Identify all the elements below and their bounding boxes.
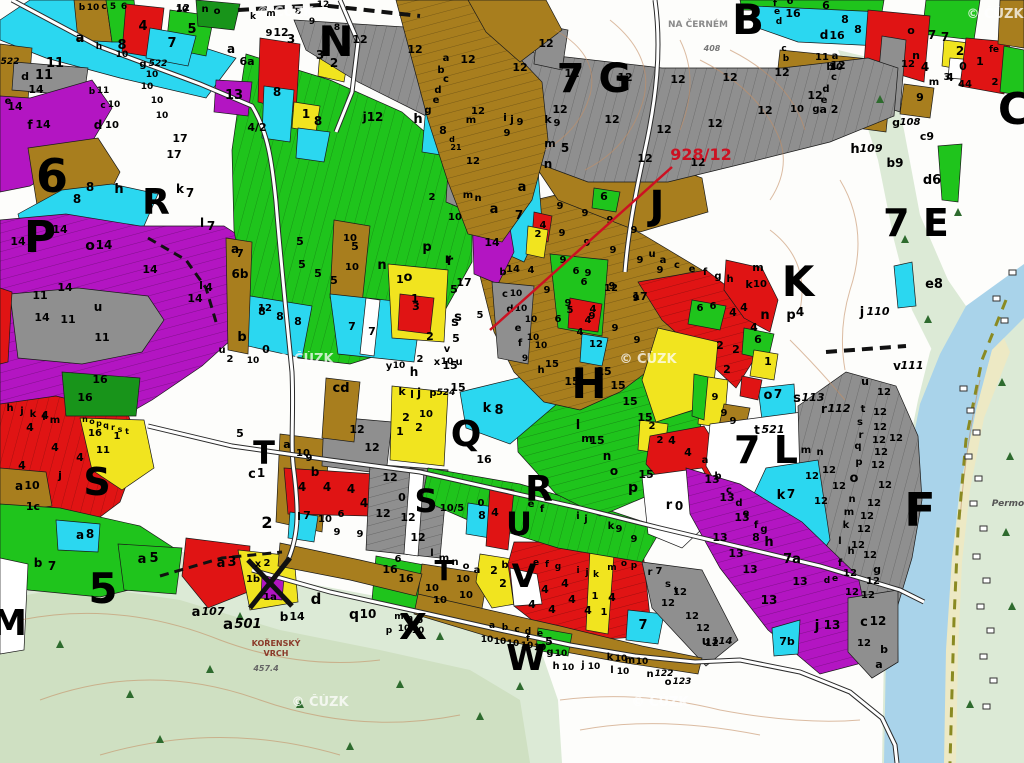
parcel[interactable] (296, 128, 330, 162)
map-label: 110 (867, 305, 890, 318)
map-label: M (0, 603, 27, 644)
map-label: g (546, 647, 553, 658)
map-label: R (142, 182, 170, 223)
map-label: u (94, 300, 103, 314)
map-label: 7a (783, 552, 801, 567)
map-label: 12 (757, 104, 772, 117)
map-label: a (138, 552, 147, 567)
map-label: p (855, 457, 862, 468)
map-label: 10 (141, 82, 154, 92)
map-label: 4 (561, 577, 569, 590)
map-label: 111 (901, 359, 924, 372)
map-label: o (665, 677, 672, 688)
map-label: c (860, 615, 868, 630)
map-label: 10 (425, 583, 439, 594)
map-label: h (552, 661, 559, 672)
building (975, 476, 982, 481)
map-label: q (349, 607, 359, 623)
map-label: h (413, 112, 422, 127)
map-label: b9 (887, 156, 904, 170)
map-label: c (831, 72, 837, 83)
building (977, 604, 984, 609)
map-label: d (735, 498, 742, 509)
map-label: l (838, 536, 841, 547)
map-label: h (6, 403, 13, 414)
map-label: 9 (712, 392, 719, 403)
map-label: 11 (96, 445, 110, 456)
map-label: 7 (638, 618, 647, 633)
map-label: 9 (631, 534, 638, 545)
map-label: 12 (604, 113, 619, 126)
map-label: 15 (545, 359, 559, 370)
tree-icon (954, 208, 962, 216)
map-label: 12 (707, 117, 722, 130)
map-label: 10 (507, 639, 520, 649)
contour-line (840, 180, 858, 370)
map-label: 10 (535, 341, 548, 351)
map-label: 12 (873, 407, 887, 418)
map-label: j (416, 386, 421, 400)
map-label: 8 (86, 527, 94, 541)
map-label: 12 (861, 590, 875, 601)
map-label: 6 (600, 190, 608, 203)
watermark: © ČÚZK (619, 351, 677, 367)
map-label: e (537, 629, 543, 639)
map-label: m (752, 261, 763, 274)
map-label: 7 (167, 36, 176, 51)
map-svg[interactable]: NBC7 G7 EJKHQRRPSSTTUVWX56MF7 LNA ČERNÉM… (0, 0, 1024, 763)
watermark: © ČÚZK (631, 694, 689, 710)
map-label: 7 (928, 28, 936, 42)
map-label: c (726, 485, 732, 496)
map-label: f (518, 338, 523, 349)
map-label: d (822, 84, 829, 95)
map-label: 0 (478, 498, 485, 509)
map-label: 12 (870, 614, 887, 628)
map-label: 14 (34, 311, 50, 324)
map-label: 10 (636, 657, 649, 667)
map-label: 7 (787, 487, 795, 501)
map-label: k (777, 488, 786, 503)
map-label: 4 (577, 327, 584, 338)
map-label: 11 (32, 289, 47, 302)
map-label: 4 (205, 281, 213, 294)
map-label: 12 (410, 531, 425, 544)
map-label: d (776, 17, 782, 27)
map-label: 12 (901, 59, 915, 70)
map-label: h (847, 546, 854, 557)
map-label: 10 (753, 279, 767, 290)
map-label: a (490, 202, 499, 217)
map-label: 14 (35, 118, 51, 131)
map-label: 16 (785, 7, 801, 20)
map-label: m (439, 553, 449, 564)
map-label: 9 (633, 293, 640, 304)
map-label: 9 (657, 265, 664, 276)
map-label: 9 (916, 91, 924, 104)
map-label: r (648, 567, 653, 578)
map-label: 16 (398, 572, 414, 585)
map-label: a 2 (820, 103, 839, 116)
map-label: 10 (790, 104, 804, 115)
map-label: 8 (73, 192, 81, 206)
watermark: © ČÚZK (276, 351, 334, 367)
map-label: p (786, 308, 795, 323)
map-label: 13 (712, 531, 727, 544)
map-label: 4 (590, 304, 597, 315)
parcel[interactable] (894, 262, 916, 308)
map-label: 7 (774, 387, 782, 401)
map-label: e (743, 508, 750, 519)
map-label: m (50, 415, 60, 426)
map-label: 1b (246, 574, 260, 585)
map-label: 4 (548, 603, 556, 616)
map-label: 12 (807, 89, 822, 102)
map-label: l (610, 665, 613, 676)
map-label: e (533, 558, 539, 568)
map-label: 7 E (883, 201, 949, 245)
map-label: 114 (712, 636, 733, 647)
map-label: 6 (338, 509, 345, 520)
map-label: 9 (612, 323, 619, 334)
map-label: 12 (832, 481, 846, 492)
map-label: n (816, 447, 823, 458)
boundary-dashed-line (826, 346, 906, 352)
map-label: 14 (10, 235, 26, 248)
map-label: 12 (661, 598, 675, 609)
map-label: 10 (562, 663, 575, 673)
map-label: fe (989, 45, 999, 55)
map-label: F (904, 483, 935, 537)
map-label: h (96, 42, 102, 52)
map-label: 2 (227, 354, 234, 365)
map-label: j (859, 305, 864, 320)
map-label: 4 (585, 315, 592, 326)
map-label: 2 (732, 343, 740, 356)
map-label: u (702, 634, 711, 648)
map-label: n (201, 4, 208, 15)
map-label: 2 (535, 229, 542, 240)
map-label: 4 (360, 496, 368, 510)
map-label: 12 (866, 576, 880, 587)
map-label: o (463, 561, 470, 572)
map-label: m (625, 655, 635, 666)
map-label: 10 (494, 637, 507, 647)
map-label: 15 (622, 395, 637, 408)
map-label: 12 (656, 123, 671, 136)
map-label: g (424, 105, 431, 116)
map-label: 6 (121, 2, 127, 12)
map-label: 8 (294, 315, 302, 328)
map-label: v (444, 344, 451, 355)
map-label: 1 (396, 425, 404, 438)
map-label: 3 (944, 72, 951, 83)
map-label: 6 (573, 266, 580, 277)
map-label: 12 (867, 498, 881, 509)
map-label: 9 (266, 28, 273, 39)
map-label: 10 (116, 50, 129, 60)
map-label: 16 (92, 373, 108, 386)
map-label: 15 (596, 365, 611, 378)
map-label: g (139, 59, 146, 70)
map-label: 12 (273, 26, 288, 39)
map-label: 0 (398, 491, 406, 504)
map-label: 12 (673, 587, 687, 598)
map-label: j (19, 406, 23, 417)
map-label: j (57, 469, 62, 482)
map-label: S (83, 460, 110, 504)
map-label: k (30, 409, 37, 420)
map-label: k (398, 385, 406, 398)
map-label: 10 (151, 96, 164, 106)
map-label: r (821, 402, 827, 416)
map-label: 12 (176, 3, 190, 14)
map-label: h (764, 535, 773, 550)
map-label: k (608, 521, 615, 532)
map-label: 16 (476, 453, 492, 466)
map-label: e (689, 264, 696, 275)
map-label: 9 (544, 285, 551, 296)
map-label: c (443, 74, 449, 85)
map-label: x (434, 357, 441, 368)
map-label: m (544, 137, 555, 150)
map-label: 522 (1, 57, 20, 67)
map-label: 10 (510, 289, 523, 299)
map-label: q (103, 421, 109, 430)
map-label: s (665, 579, 671, 590)
map-label: d6 (923, 173, 941, 188)
building (973, 430, 980, 435)
building (980, 654, 987, 659)
map-label: p (628, 480, 638, 496)
map-label: 15 (589, 434, 604, 447)
map-label: b (89, 87, 96, 97)
map-label: 10 (247, 356, 260, 366)
map-label: 7 (941, 30, 949, 44)
building (1001, 318, 1008, 323)
map-label: u (648, 249, 655, 260)
map-label: 16 (829, 29, 845, 42)
map-label: o (214, 6, 221, 17)
map-label: 2 (426, 330, 434, 343)
map-label: 3 (316, 48, 324, 62)
map-label: 5 (110, 2, 116, 12)
map-label: 14 (506, 264, 520, 275)
map-label: 5 (477, 310, 484, 321)
map-label: h (726, 274, 733, 285)
building (973, 554, 980, 559)
map-label: 12 (617, 71, 632, 84)
map-label: 12 (466, 156, 480, 167)
map-label: 0 (959, 60, 967, 73)
map-label: 4 (491, 506, 499, 519)
map-label: e (433, 95, 440, 106)
map-label: 4 (796, 305, 804, 319)
map-label: k (593, 570, 600, 580)
map-label: 2 (264, 558, 271, 569)
map-label: C (998, 84, 1024, 135)
map-label: 408 (703, 44, 721, 53)
map-label: 7 (303, 509, 311, 522)
map-label: 10 (617, 667, 630, 677)
map-label: 12 (589, 339, 603, 350)
map-label: Permo (992, 499, 1024, 509)
map-label: cd (332, 381, 349, 396)
map-label: a (223, 615, 233, 633)
map-label: 12 (857, 524, 871, 535)
map-label: 0 (675, 499, 683, 513)
map-label: 12 (382, 471, 397, 484)
map-label: k (607, 652, 614, 663)
map-label: 4 (51, 441, 59, 454)
map-label: 9 (334, 527, 341, 538)
map-label: 6 (395, 554, 402, 565)
map-label: 3 (227, 555, 236, 570)
map-label: 1 (592, 591, 599, 602)
map-label: t (125, 427, 129, 436)
map-label: p (631, 561, 638, 571)
map-label: 14 (289, 610, 305, 623)
map-label: c (101, 2, 106, 12)
map-label: 15 (450, 381, 465, 394)
map-label: d (449, 135, 455, 144)
map-label: 1 (302, 107, 310, 121)
map-label: 9 (306, 453, 313, 464)
map-label: j (814, 618, 820, 634)
map-label: g (714, 271, 721, 282)
map-label: b (280, 610, 289, 624)
map-label: 13 (824, 618, 841, 632)
map-label: p (386, 626, 393, 636)
map-label: 13 (792, 575, 807, 588)
map-label: p (422, 240, 431, 255)
map-label: 10 (105, 120, 119, 131)
map-label: k (544, 113, 552, 126)
map-label: n (848, 494, 855, 505)
map-label: 12 (637, 152, 652, 165)
map-label: 8 (478, 509, 486, 522)
map-label: o (764, 388, 773, 403)
map-label: 12 (564, 67, 579, 80)
map-label: a (217, 556, 226, 571)
map-label: 6 (697, 303, 704, 314)
map-label: 9 (504, 128, 511, 139)
map-label: 2 (992, 77, 999, 88)
map-label: 17 (456, 276, 471, 289)
building (993, 296, 1000, 301)
map-label: n (407, 614, 413, 624)
map-label: 5 (314, 267, 322, 280)
map-label: 2 (402, 411, 410, 424)
map-label: 12 (873, 422, 887, 433)
map-label: 8 (494, 403, 503, 418)
map-label: 11 (94, 331, 109, 344)
map-label: J (647, 183, 665, 229)
map-label: m (463, 190, 473, 201)
map-label: 15 (610, 379, 625, 392)
map-label: 6 (710, 301, 717, 312)
map-label: u (218, 345, 225, 356)
map-label: 9 (559, 228, 566, 239)
map-label: m (844, 507, 854, 518)
map-label: h (537, 365, 544, 376)
map-label: a (443, 53, 450, 64)
map-label: 10 (345, 262, 359, 273)
map-label: 9 (557, 201, 564, 212)
map-label: n (544, 157, 553, 171)
map-label: 4 (323, 480, 331, 494)
map-label: a (76, 528, 84, 542)
map-label: 10 (360, 607, 377, 621)
map-label: 10 (419, 409, 433, 420)
map-label: o (610, 464, 618, 478)
map-label: b (311, 465, 320, 479)
map-label: 9 (357, 529, 364, 540)
map-label: 2 (330, 56, 338, 70)
map-label: l (430, 548, 433, 559)
map-label: 4 (298, 480, 306, 494)
map-label: 7b (779, 635, 795, 648)
map-label: 14 (57, 281, 73, 294)
map-label: r (666, 498, 673, 513)
map-label: 9 (522, 354, 528, 364)
map-label: 4 (528, 265, 535, 276)
map-label: 12 (471, 106, 485, 117)
map-label: b (783, 54, 790, 64)
parcel[interactable] (740, 376, 762, 400)
map-label: 12 (805, 471, 819, 482)
map-label: 13 (225, 88, 243, 103)
map-label: o (417, 616, 423, 626)
map-label: 2 (649, 421, 656, 432)
map-label: 8 (314, 114, 322, 128)
map-label: g (873, 563, 881, 576)
map-label: y (386, 361, 393, 372)
map-label: 5 (296, 235, 304, 248)
map-label: 44 (958, 79, 972, 90)
map-label: e (515, 323, 522, 334)
map-label: 4 (528, 598, 536, 611)
map-label: 6 (787, 0, 794, 7)
map-label: 4 (26, 421, 34, 434)
map-label: 108 (900, 117, 921, 128)
map-label: 17 (166, 148, 181, 161)
map-label: 15 (638, 468, 653, 481)
map-label: 1 (976, 55, 984, 68)
map-label: a (192, 605, 201, 620)
map-label: b (501, 560, 508, 571)
annotation-parcel-number: 928/12 (670, 145, 732, 164)
map-label: 14 (142, 263, 158, 276)
map-label: 12 (364, 441, 379, 454)
map-viewport[interactable]: NBC7 G7 EJKHQRRPSSTTUVWX56MF7 LNA ČERNÉM… (0, 0, 1024, 763)
map-label: n (451, 557, 458, 568)
map-label: S (414, 482, 437, 520)
map-label: l (297, 510, 301, 523)
parcel[interactable] (938, 144, 962, 202)
map-label: m (801, 445, 811, 456)
map-label: o (907, 24, 915, 37)
map-label: e (5, 96, 12, 107)
map-label: c (674, 260, 680, 271)
map-label: 4 (347, 482, 355, 496)
map-label: a (489, 621, 495, 631)
map-label: 6a (239, 55, 254, 68)
map-label: g (760, 524, 767, 535)
map-label: 4 (668, 434, 676, 447)
map-label: c (248, 467, 256, 482)
map-label: n (82, 415, 88, 424)
